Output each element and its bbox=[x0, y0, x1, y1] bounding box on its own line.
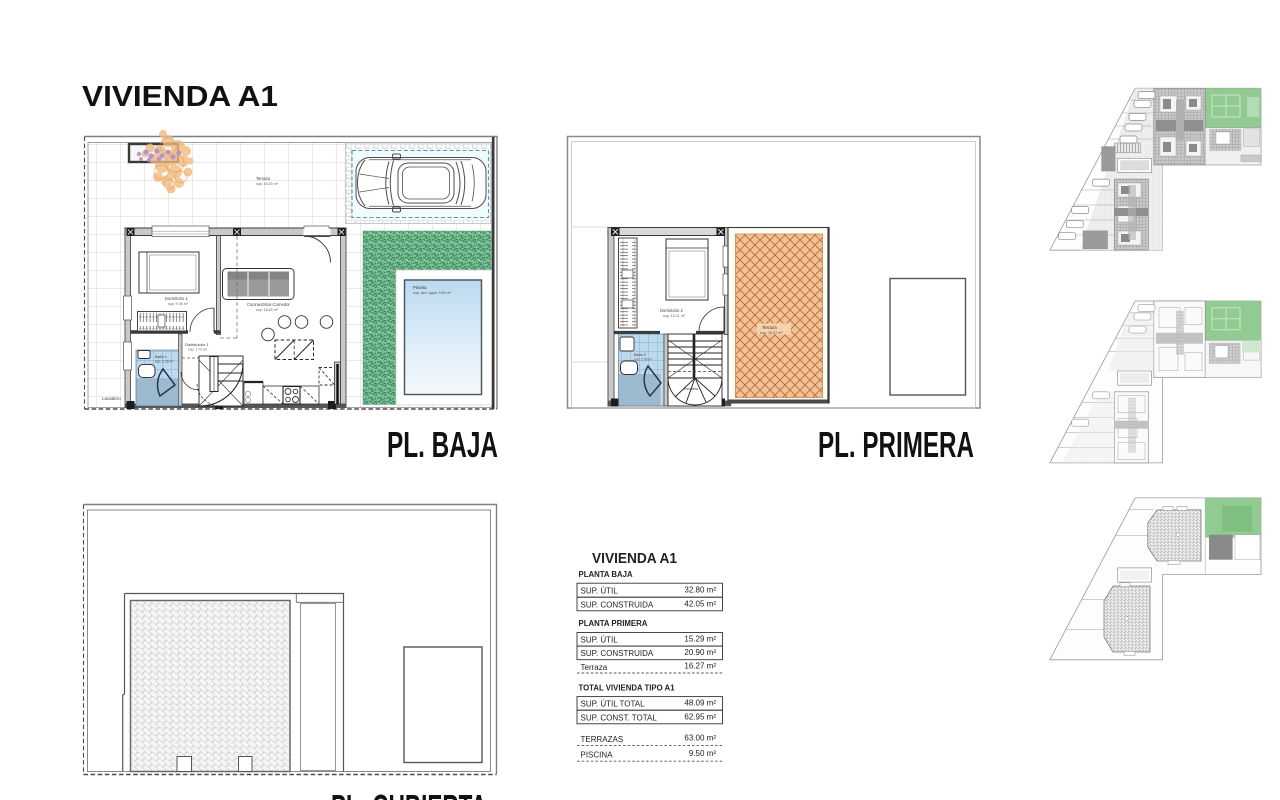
svg-text:TOTAL VIVIENDA TIPO A1: TOTAL VIVIENDA TIPO A1 bbox=[579, 684, 676, 693]
svg-text:SUP. ÚTIL TOTAL: SUP. ÚTIL TOTAL bbox=[581, 700, 646, 709]
svg-text:Terraza: Terraza bbox=[256, 176, 271, 181]
svg-text:Baño 2: Baño 2 bbox=[634, 353, 646, 357]
svg-text:48.09 m²: 48.09 m² bbox=[684, 699, 716, 708]
svg-text:Dormitorio 2: Dormitorio 2 bbox=[660, 308, 683, 313]
svg-text:Terraza: Terraza bbox=[581, 663, 608, 672]
svg-text:SUP. CONSTRUIDA: SUP. CONSTRUIDA bbox=[581, 649, 654, 658]
svg-text:Piscina: Piscina bbox=[413, 285, 427, 290]
svg-text:sup: 18.60 m²: sup: 18.60 m² bbox=[256, 308, 279, 312]
svg-text:sup: 3.35 m²: sup: 3.35 m² bbox=[155, 360, 174, 364]
svg-text:Lavadero: Lavadero bbox=[102, 396, 121, 401]
svg-text:VIVIENDA A1: VIVIENDA A1 bbox=[82, 81, 278, 113]
svg-text:9.50 m²: 9.50 m² bbox=[689, 749, 716, 758]
svg-text:PLANTA BAJA: PLANTA BAJA bbox=[579, 570, 634, 579]
svg-text:PL. BAJA: PL. BAJA bbox=[387, 424, 498, 465]
svg-text:Cocina-Estar-Comedor: Cocina-Estar-Comedor bbox=[247, 302, 290, 307]
svg-text:Baño 1: Baño 1 bbox=[155, 355, 167, 359]
svg-text:sup: 1.70 m²: sup: 1.70 m² bbox=[188, 348, 208, 352]
svg-text:32.80 m²: 32.80 m² bbox=[684, 586, 716, 595]
svg-text:16.27 m²: 16.27 m² bbox=[684, 661, 716, 670]
svg-text:SUP. CONSTRUIDA: SUP. CONSTRUIDA bbox=[581, 600, 654, 609]
svg-text:62.95 m²: 62.95 m² bbox=[684, 712, 716, 721]
svg-text:SUP. ÚTIL: SUP. ÚTIL bbox=[581, 587, 619, 596]
svg-text:PL. PRIMERA: PL. PRIMERA bbox=[818, 424, 974, 465]
svg-text:sup: 10.21 m²: sup: 10.21 m² bbox=[663, 314, 686, 318]
svg-text:sup: 3.50 m²: sup: 3.50 m² bbox=[634, 358, 653, 362]
svg-text:Terraza: Terraza bbox=[762, 325, 777, 330]
svg-text:Escalera: Escalera bbox=[684, 387, 698, 391]
svg-text:PISCINA: PISCINA bbox=[581, 751, 614, 760]
svg-text:20.90 m²: 20.90 m² bbox=[684, 648, 716, 657]
svg-text:Dormitorio 1: Dormitorio 1 bbox=[165, 296, 188, 301]
svg-text:VIVIENDA A1: VIVIENDA A1 bbox=[592, 551, 677, 567]
svg-text:sup. lám. agua: 9.50 m²: sup. lám. agua: 9.50 m² bbox=[413, 291, 452, 295]
svg-text:TERRAZAS: TERRAZAS bbox=[581, 735, 624, 744]
svg-text:Distribuidor 1: Distribuidor 1 bbox=[185, 342, 209, 347]
svg-text:42.05 m²: 42.05 m² bbox=[684, 599, 716, 608]
svg-text:sup: 16.27 m²: sup: 16.27 m² bbox=[760, 331, 783, 335]
svg-text:15.29 m²: 15.29 m² bbox=[684, 635, 716, 644]
svg-text:SUP. CONST. TOTAL: SUP. CONST. TOTAL bbox=[581, 713, 658, 722]
svg-text:sup: 63.00 m²: sup: 63.00 m² bbox=[256, 182, 279, 186]
svg-text:sup: 9.05 m²: sup: 9.05 m² bbox=[168, 302, 189, 306]
svg-text:PL. CUBIERTA: PL. CUBIERTA bbox=[331, 787, 487, 800]
svg-text:PLANTA PRIMERA: PLANTA PRIMERA bbox=[579, 619, 648, 628]
svg-text:SUP. ÚTIL: SUP. ÚTIL bbox=[581, 636, 619, 645]
svg-text:63.00 m²: 63.00 m² bbox=[684, 733, 716, 742]
